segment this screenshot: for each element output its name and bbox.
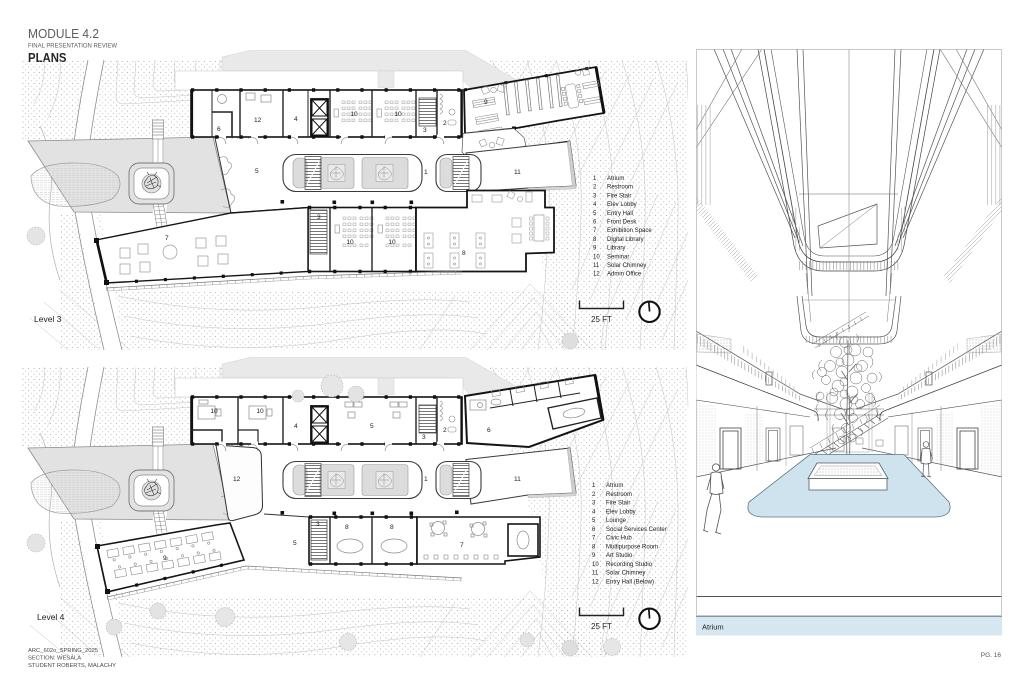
- svg-text:6: 6: [217, 126, 221, 133]
- svg-text:25 FT: 25 FT: [591, 315, 612, 324]
- svg-text:Entry Hall: Entry Hall: [607, 211, 633, 217]
- svg-text:Elev Lobby: Elev Lobby: [607, 202, 637, 208]
- svg-text:10: 10: [346, 239, 354, 246]
- svg-text:8: 8: [390, 524, 394, 531]
- svg-text:2: 2: [443, 120, 447, 127]
- svg-text:Multipurpose Room: Multipurpose Room: [606, 544, 658, 550]
- svg-text:3: 3: [317, 214, 321, 221]
- svg-text:Social Services Center: Social Services Center: [606, 527, 667, 533]
- svg-text:Atrium: Atrium: [702, 623, 724, 632]
- svg-text:10: 10: [388, 239, 396, 246]
- svg-text:5: 5: [370, 423, 374, 430]
- svg-text:Seminar: Seminar: [607, 254, 629, 260]
- svg-text:Recording Studio: Recording Studio: [606, 562, 653, 568]
- svg-text:Library: Library: [607, 246, 625, 252]
- svg-text:12: 12: [593, 272, 600, 278]
- svg-text:Admin Office: Admin Office: [607, 272, 642, 278]
- svg-text:25 FT: 25 FT: [591, 622, 612, 631]
- svg-text:Exhibition Space: Exhibition Space: [607, 228, 652, 234]
- svg-text:FINAL PRESENTATION REVIEW: FINAL PRESENTATION REVIEW: [28, 43, 117, 50]
- svg-text:8: 8: [345, 524, 349, 531]
- svg-text:1: 1: [424, 169, 428, 176]
- svg-text:10: 10: [394, 111, 402, 118]
- svg-text:Front Desk: Front Desk: [607, 220, 637, 226]
- svg-text:Level 3: Level 3: [34, 314, 62, 324]
- svg-text:9: 9: [484, 99, 488, 106]
- svg-text:2: 2: [443, 427, 447, 434]
- svg-text:10: 10: [350, 111, 358, 118]
- svg-text:4: 4: [294, 116, 298, 123]
- svg-text:SECTION: WESALA: SECTION: WESALA: [28, 656, 81, 662]
- svg-text:Entry Hall (Below): Entry Hall (Below): [606, 579, 654, 585]
- svg-text:3: 3: [422, 434, 426, 441]
- svg-text:11: 11: [514, 476, 521, 483]
- svg-text:Digital Library: Digital Library: [607, 237, 644, 243]
- svg-text:5: 5: [255, 168, 259, 175]
- svg-text:Level 4: Level 4: [37, 612, 65, 622]
- svg-text:3: 3: [423, 127, 427, 134]
- svg-text:12: 12: [254, 117, 262, 124]
- svg-text:8: 8: [462, 250, 466, 257]
- svg-text:Atrium: Atrium: [607, 176, 624, 182]
- svg-text:Civic Hub: Civic Hub: [606, 536, 632, 542]
- svg-text:Restroom: Restroom: [607, 185, 633, 191]
- svg-text:STUDENT ROBERTS, MALACHY: STUDENT ROBERTS, MALACHY: [28, 663, 116, 669]
- svg-text:11: 11: [593, 263, 600, 269]
- svg-text:Art Studio: Art Studio: [606, 553, 633, 559]
- svg-text:Fire Stair: Fire Stair: [606, 501, 630, 507]
- svg-text:Fire Stair: Fire Stair: [607, 193, 631, 199]
- svg-text:7: 7: [165, 235, 169, 242]
- svg-text:7: 7: [460, 542, 464, 549]
- svg-text:5: 5: [293, 540, 297, 547]
- svg-text:Solar Chimney: Solar Chimney: [607, 263, 646, 269]
- svg-text:12: 12: [233, 476, 241, 483]
- svg-text:Restroom: Restroom: [606, 492, 632, 498]
- svg-text:4: 4: [294, 423, 298, 430]
- svg-text:ARC_602o_SPRING_2025: ARC_602o_SPRING_2025: [28, 648, 98, 654]
- svg-text:Solar Chimney: Solar Chimney: [606, 571, 645, 577]
- svg-text:Lounge: Lounge: [606, 518, 627, 524]
- svg-text:12: 12: [592, 579, 599, 585]
- svg-text:10: 10: [210, 408, 218, 415]
- svg-text:3: 3: [316, 521, 320, 528]
- svg-text:PG. 16: PG. 16: [981, 652, 1002, 659]
- svg-text:6: 6: [487, 427, 491, 434]
- svg-text:10: 10: [592, 562, 599, 568]
- svg-text:11: 11: [514, 169, 521, 176]
- svg-text:Elev Lobby: Elev Lobby: [606, 509, 636, 515]
- svg-text:9: 9: [163, 555, 167, 562]
- svg-text:10: 10: [256, 408, 264, 415]
- svg-text:1: 1: [424, 476, 428, 483]
- svg-text:10: 10: [593, 254, 600, 260]
- svg-text:Atrium: Atrium: [606, 483, 623, 489]
- svg-text:11: 11: [592, 571, 599, 577]
- svg-text:MODULE 4.2: MODULE 4.2: [28, 26, 99, 41]
